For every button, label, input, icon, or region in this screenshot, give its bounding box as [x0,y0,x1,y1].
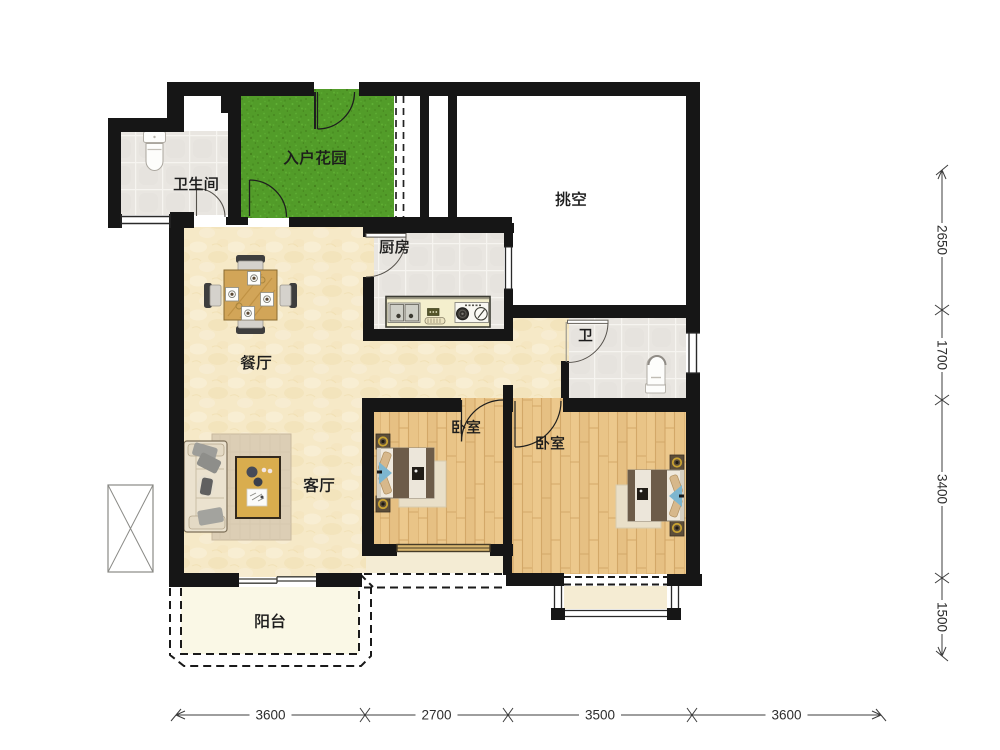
svg-text:2700: 2700 [421,708,451,723]
svg-text:3400: 3400 [935,474,950,504]
svg-text:3600: 3600 [771,708,801,723]
svg-text:1700: 1700 [935,340,950,370]
svg-text:2650: 2650 [935,225,950,255]
svg-text:3600: 3600 [255,708,285,723]
svg-text:3500: 3500 [585,708,615,723]
svg-text:1500: 1500 [935,602,950,632]
